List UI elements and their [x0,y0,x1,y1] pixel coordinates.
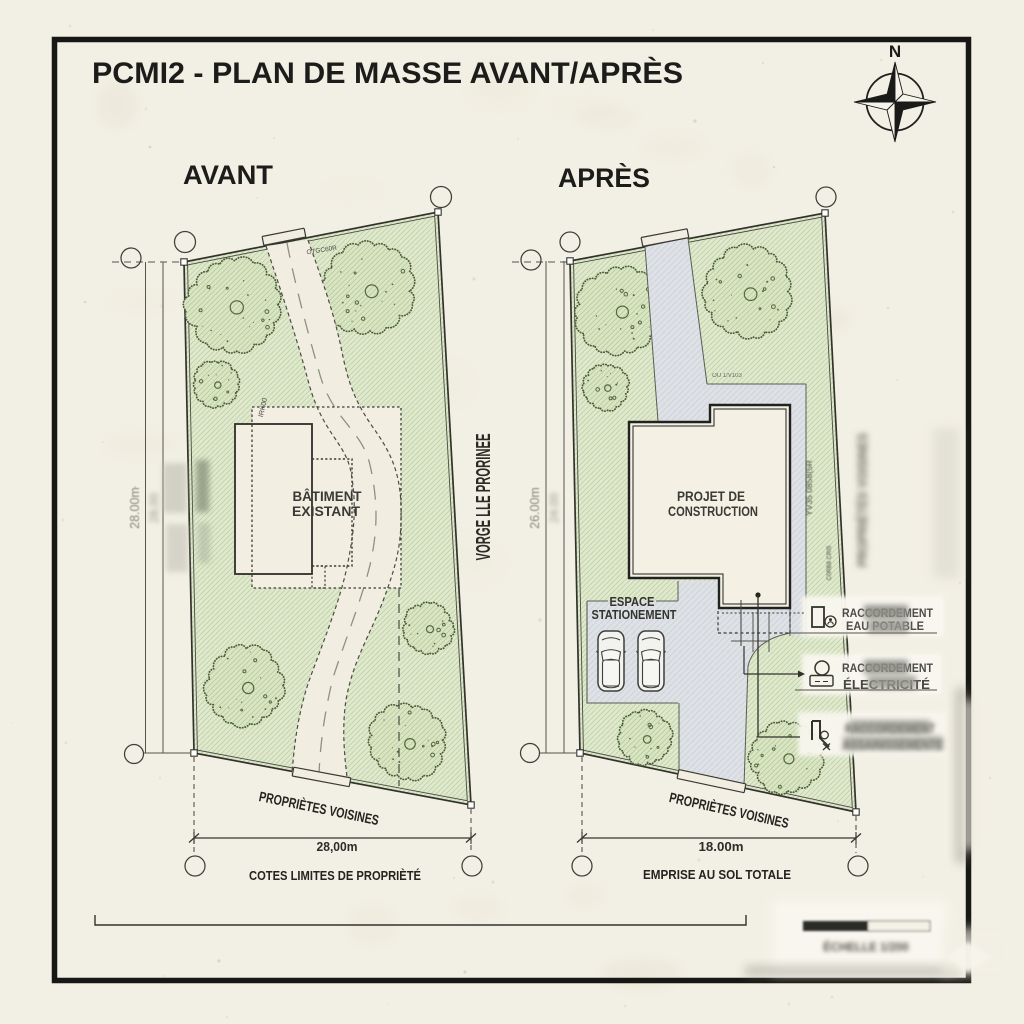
svg-text:APRÈS: APRÈS [558,162,650,193]
svg-text:BÂTIMENT: BÂTIMENT [293,489,363,504]
svg-text:28.00: 28.00 [147,493,161,523]
svg-text:28,00m: 28,00m [317,839,358,854]
svg-text:STATIONEMENT: STATIONEMENT [592,608,677,622]
svg-text:28.00m: 28.00m [128,487,142,529]
svg-text:EXISTANT: EXISTANT [292,504,361,519]
svg-text:N: N [889,42,901,61]
svg-text:PROJET DE: PROJET DE [677,489,745,504]
svg-text:ESPACE: ESPACE [610,595,655,609]
svg-text:YV35 0858(5R: YV35 0858(5R [804,460,814,516]
svg-text:24.00: 24.00 [547,493,561,523]
svg-text:C0RB8 CRI5: C0RB8 CRI5 [827,545,833,580]
svg-text:OU 1/V103: OU 1/V103 [712,373,742,379]
svg-text:ÉCHELLE 1/200: ÉCHELLE 1/200 [823,941,909,954]
svg-text:COTES LIMITES DE PROPRIÈTÉ: COTES LIMITES DE PROPRIÈTÉ [249,868,421,883]
svg-text:AVANT: AVANT [183,160,274,190]
svg-text:PROPRIÉTÉS VOISINES: PROPRIÉTÉS VOISINES [854,433,870,567]
svg-text:EMPRISE AU SOL TOTALE: EMPRISE AU SOL TOTALE [643,868,791,882]
svg-text:VORGE LLE PRORINEE: VORGE LLE PRORINEE [473,434,495,561]
svg-text:18.00m: 18.00m [699,839,744,854]
svg-text:CONSTRUCTION: CONSTRUCTION [668,504,758,519]
svg-text:26.00m: 26.00m [528,487,542,529]
svg-text:PCMI2 - PLAN DE MASSE AVANT/AP: PCMI2 - PLAN DE MASSE AVANT/APRÈS [92,56,683,90]
